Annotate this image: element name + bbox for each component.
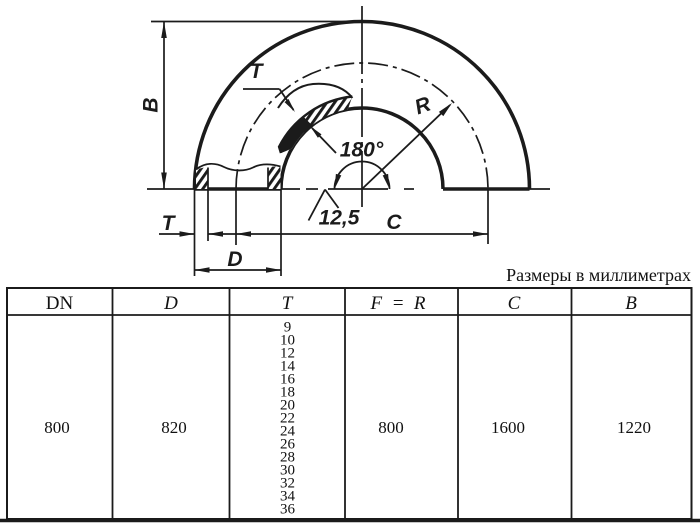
svg-text:1600: 1600	[491, 418, 525, 437]
svg-text:B: B	[140, 97, 163, 112]
svg-text:DN: DN	[46, 293, 74, 314]
svg-text:Размеры в миллиметрах: Размеры в миллиметрах	[506, 265, 691, 285]
svg-text:F = R: F = R	[369, 293, 425, 314]
svg-text:820: 820	[161, 418, 187, 437]
svg-text:180°: 180°	[340, 139, 384, 162]
svg-text:T: T	[282, 293, 294, 314]
svg-text:36: 36	[280, 502, 296, 518]
svg-text:R: R	[412, 92, 435, 119]
svg-text:C: C	[386, 211, 402, 234]
svg-text:800: 800	[378, 418, 404, 437]
svg-text:C: C	[508, 293, 521, 314]
svg-text:12,5: 12,5	[319, 207, 360, 230]
svg-text:B: B	[625, 293, 637, 314]
svg-text:T: T	[250, 60, 265, 83]
svg-text:800: 800	[44, 418, 70, 437]
svg-text:D: D	[227, 248, 242, 271]
svg-text:T: T	[162, 212, 177, 235]
svg-text:D: D	[163, 293, 178, 314]
svg-text:1220: 1220	[617, 418, 651, 437]
